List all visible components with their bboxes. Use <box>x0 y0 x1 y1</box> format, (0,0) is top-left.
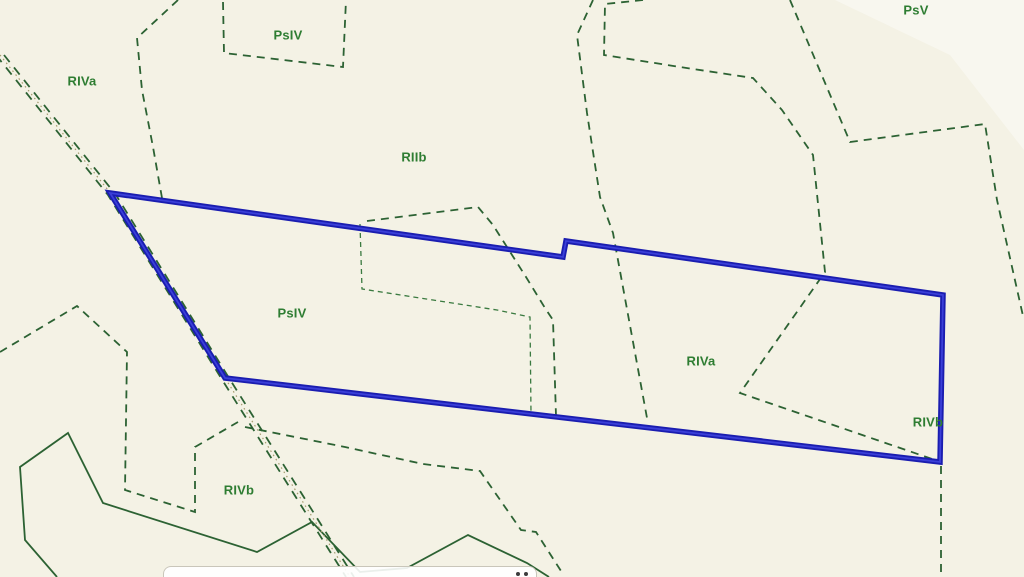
map-viewport: RIVaPsIVRIIbPsVPsIVRIVaRIVbRIVb <box>0 0 1024 577</box>
map-background <box>0 0 1024 577</box>
zone-label: RIVb <box>224 482 254 497</box>
bottom-toolbar[interactable] <box>163 566 537 577</box>
zone-label: RIIb <box>401 149 426 164</box>
zone-label: PsV <box>903 2 928 17</box>
zone-label: PsIV <box>278 305 307 320</box>
map-canvas: RIVaPsIVRIIbPsVPsIVRIVaRIVbRIVb <box>0 0 1024 577</box>
zone-label: RIVa <box>687 353 717 368</box>
zone-label: RIVa <box>68 73 98 88</box>
toolbar-handle-dot <box>524 572 528 576</box>
zone-label: RIVb <box>913 414 943 429</box>
zone-label: PsIV <box>274 27 303 42</box>
toolbar-handle-dot <box>516 572 520 576</box>
